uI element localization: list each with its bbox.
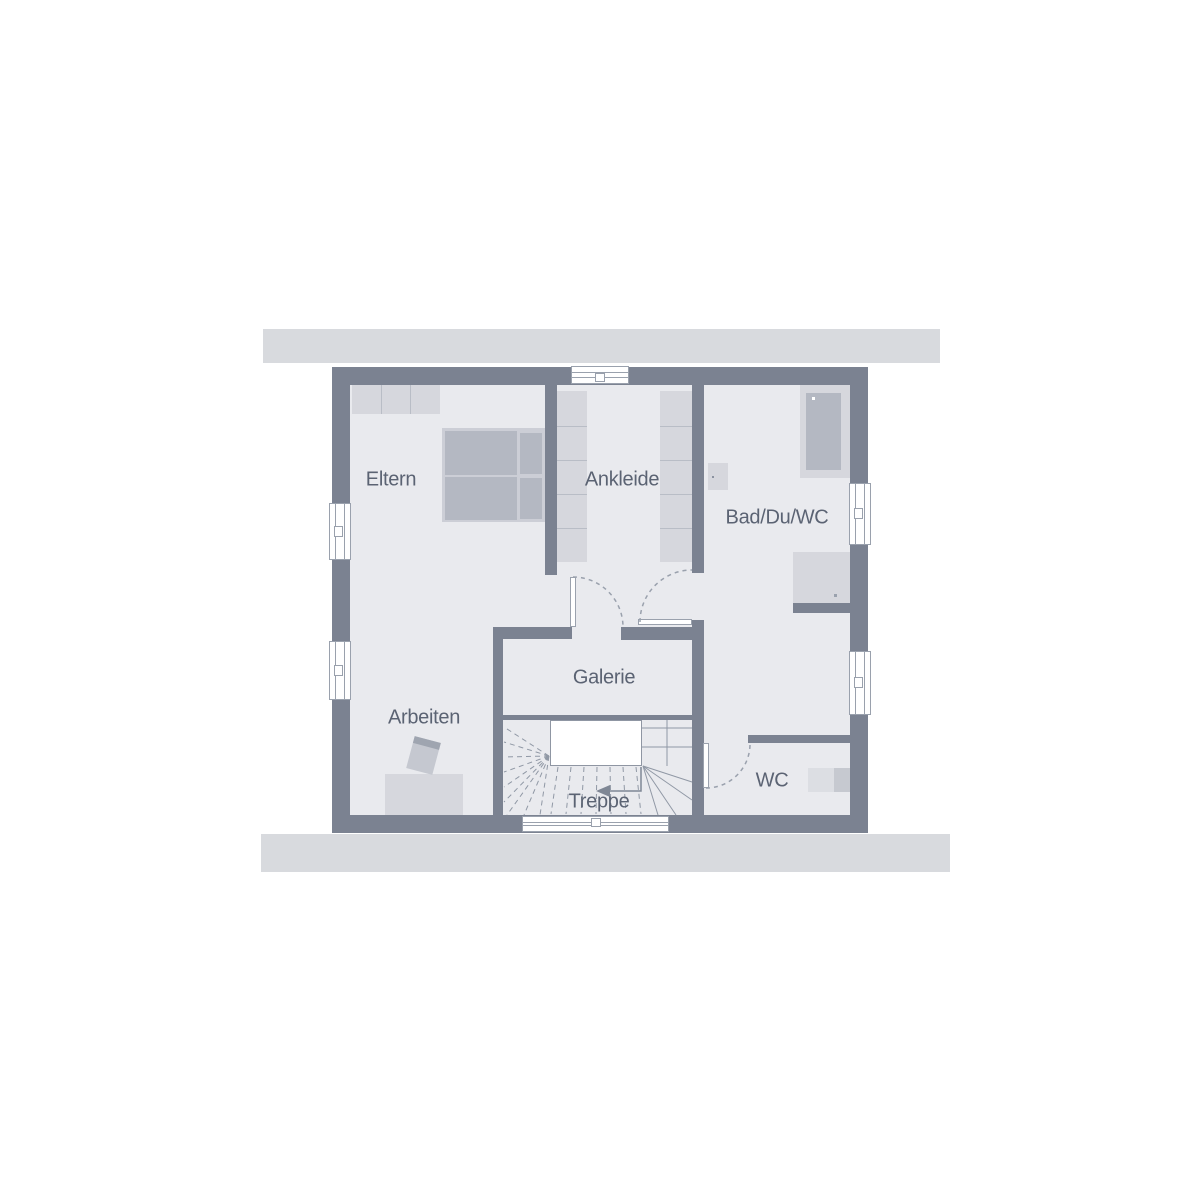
exterior-wall-left bbox=[332, 367, 350, 833]
window-symbol-left-1 bbox=[329, 503, 351, 560]
closet-right bbox=[660, 391, 692, 562]
sink-drain bbox=[712, 476, 714, 478]
wall-ankleide-bad bbox=[692, 385, 704, 573]
room-label-treppe: Treppe bbox=[569, 791, 630, 814]
bed-pillow bbox=[520, 433, 542, 474]
closet-shelf bbox=[660, 494, 692, 495]
window-handle bbox=[854, 677, 863, 688]
closet-shelf bbox=[555, 460, 587, 461]
bed-mattress bbox=[445, 477, 517, 520]
desk bbox=[385, 774, 463, 815]
closet-left bbox=[555, 391, 587, 562]
window-symbol-right-1 bbox=[849, 483, 871, 545]
room-label-arbeiten: Arbeiten bbox=[388, 707, 460, 730]
wardrobe-eltern bbox=[352, 385, 440, 414]
closet-shelf bbox=[555, 528, 587, 529]
door-leaf-ankleide-bad bbox=[638, 619, 692, 625]
shower-drain bbox=[812, 397, 815, 400]
bathtub-drain bbox=[834, 594, 837, 597]
wardrobe-divider bbox=[410, 385, 411, 414]
roof-strip-top bbox=[263, 329, 940, 363]
door-leaf-eltern bbox=[570, 577, 576, 627]
wall-bathtub-apron bbox=[793, 603, 850, 613]
window-handle bbox=[854, 508, 863, 519]
roof-strip-bottom bbox=[261, 834, 950, 872]
wardrobe-divider bbox=[381, 385, 382, 414]
room-label-wc: WC bbox=[756, 770, 789, 793]
shower-tray bbox=[806, 393, 841, 470]
door-leaf-wc bbox=[703, 743, 709, 788]
stair-void bbox=[550, 720, 642, 766]
bed-mattress bbox=[445, 431, 517, 475]
exterior-wall-right bbox=[850, 367, 868, 833]
window-symbol-right-2 bbox=[849, 651, 871, 715]
closet-shelf bbox=[660, 528, 692, 529]
closet-shelf bbox=[555, 494, 587, 495]
wall-wc-north bbox=[748, 735, 850, 743]
closet-shelf bbox=[555, 426, 587, 427]
room-label-galerie: Galerie bbox=[573, 667, 635, 690]
closet-shelf bbox=[660, 426, 692, 427]
room-label-ankleide: Ankleide bbox=[585, 469, 659, 492]
room-label-bad-du-wc: Bad/Du/WC bbox=[726, 507, 829, 530]
bathtub bbox=[793, 552, 850, 603]
window-handle bbox=[595, 373, 605, 382]
wall-arbeiten-galerie bbox=[493, 627, 503, 815]
wall-eltern-ankleide bbox=[545, 385, 557, 575]
room-label-eltern: Eltern bbox=[366, 469, 416, 492]
window-handle bbox=[334, 526, 343, 537]
closet-shelf bbox=[660, 460, 692, 461]
wall-galerie-north-east bbox=[621, 627, 692, 640]
wall-galerie-north-west bbox=[493, 627, 572, 639]
window-handle bbox=[591, 818, 601, 827]
window-handle bbox=[334, 665, 343, 676]
window-symbol-bottom bbox=[522, 816, 669, 832]
bed-pillow bbox=[520, 478, 542, 519]
wc-basin bbox=[808, 768, 834, 792]
window-symbol-left-2 bbox=[329, 641, 351, 700]
bath-sink bbox=[708, 463, 728, 490]
floorplan-canvas: Eltern Ankleide Bad/Du/WC Arbeiten Galer… bbox=[0, 0, 1200, 1200]
window-symbol-top bbox=[571, 366, 629, 384]
